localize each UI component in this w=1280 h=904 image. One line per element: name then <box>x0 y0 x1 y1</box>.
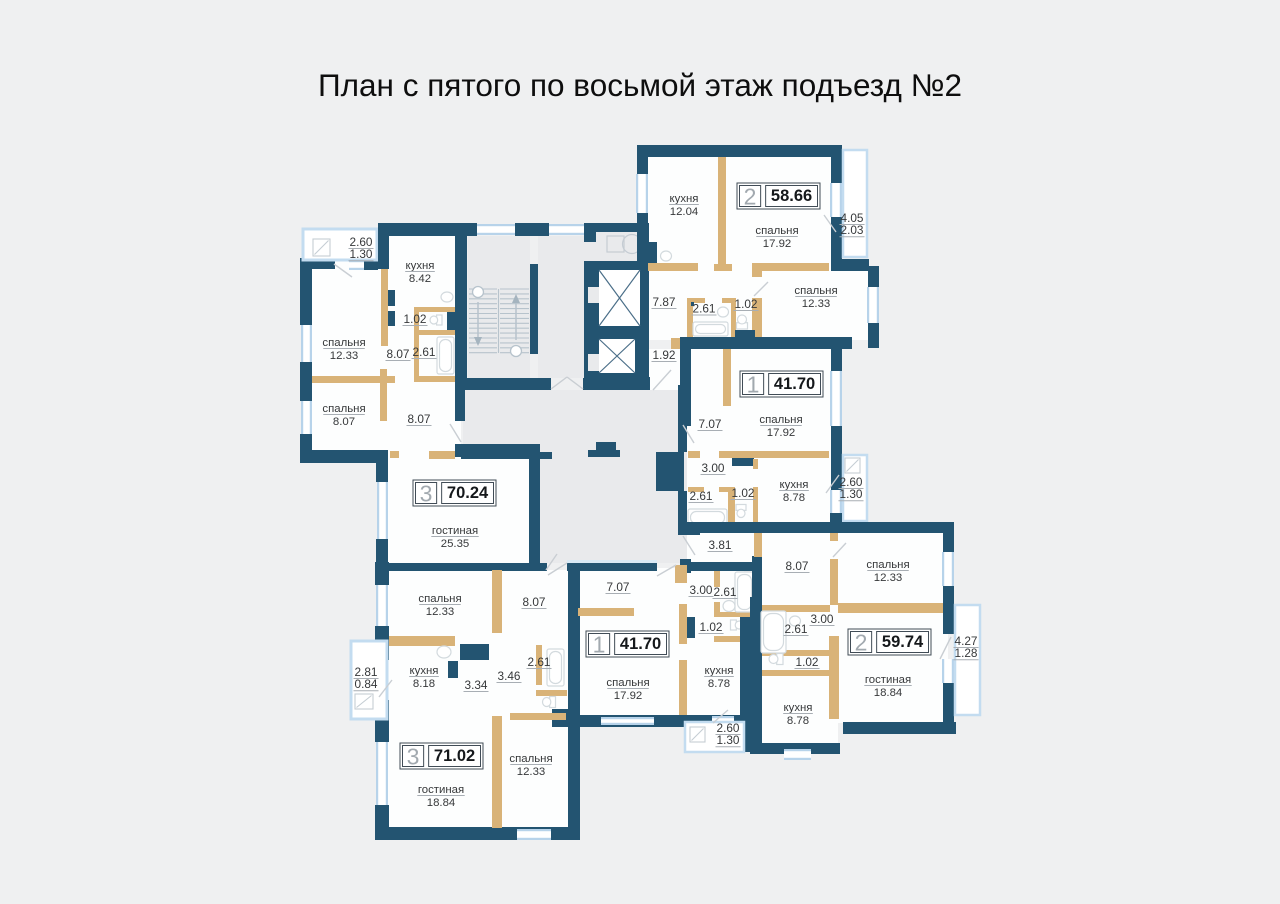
svg-text:41.70: 41.70 <box>620 635 661 653</box>
svg-text:2: 2 <box>744 184 757 210</box>
svg-text:спальня: спальня <box>794 285 837 297</box>
svg-text:3.81: 3.81 <box>709 538 732 552</box>
svg-text:спальня: спальня <box>755 225 798 237</box>
svg-text:12.33: 12.33 <box>802 298 831 310</box>
svg-text:1.30: 1.30 <box>350 247 373 261</box>
svg-text:25.35: 25.35 <box>441 538 470 550</box>
svg-text:7.07: 7.07 <box>699 417 722 431</box>
svg-text:2.61: 2.61 <box>413 345 436 359</box>
svg-text:41.70: 41.70 <box>774 375 815 393</box>
svg-text:12.33: 12.33 <box>330 350 359 362</box>
svg-text:8.78: 8.78 <box>783 492 805 504</box>
svg-text:1.30: 1.30 <box>717 733 740 747</box>
svg-text:71.02: 71.02 <box>434 747 475 765</box>
svg-text:17.92: 17.92 <box>767 427 796 439</box>
svg-text:1.02: 1.02 <box>735 297 758 311</box>
svg-text:12.33: 12.33 <box>517 766 546 778</box>
svg-text:1.28: 1.28 <box>955 646 978 660</box>
svg-text:7.87: 7.87 <box>653 295 676 309</box>
svg-text:8.07: 8.07 <box>523 595 546 609</box>
svg-text:1.02: 1.02 <box>796 655 819 669</box>
svg-text:1.30: 1.30 <box>840 487 863 501</box>
svg-text:План с пятого по восьмой этаж: План с пятого по восьмой этаж подъезд №2 <box>318 67 962 103</box>
svg-text:кухня: кухня <box>670 193 699 205</box>
svg-text:2.61: 2.61 <box>714 585 737 599</box>
svg-text:гостиная: гостиная <box>865 674 911 686</box>
svg-text:58.66: 58.66 <box>771 187 812 205</box>
svg-text:8.18: 8.18 <box>413 678 435 690</box>
svg-text:спальня: спальня <box>606 677 649 689</box>
svg-text:8.07: 8.07 <box>387 347 410 361</box>
svg-text:2.61: 2.61 <box>693 302 716 316</box>
svg-text:3.00: 3.00 <box>690 583 713 597</box>
svg-text:8.07: 8.07 <box>408 412 431 426</box>
svg-text:кухня: кухня <box>705 665 734 677</box>
svg-text:17.92: 17.92 <box>614 690 643 702</box>
svg-text:кухня: кухня <box>780 479 809 491</box>
svg-text:3.34: 3.34 <box>465 678 488 692</box>
svg-text:2: 2 <box>855 630 868 656</box>
svg-text:3.46: 3.46 <box>498 669 521 683</box>
svg-text:59.74: 59.74 <box>882 633 924 651</box>
svg-text:3.00: 3.00 <box>811 612 834 626</box>
svg-text:7.07: 7.07 <box>607 580 630 594</box>
svg-text:2.61: 2.61 <box>528 655 551 669</box>
svg-text:18.84: 18.84 <box>427 797 456 809</box>
svg-text:3.00: 3.00 <box>702 461 725 475</box>
svg-text:12.04: 12.04 <box>670 206 699 218</box>
svg-text:2.61: 2.61 <box>785 622 808 636</box>
svg-text:17.92: 17.92 <box>763 238 792 250</box>
svg-text:8.07: 8.07 <box>333 416 355 428</box>
svg-text:1: 1 <box>593 632 606 658</box>
svg-text:12.33: 12.33 <box>426 606 455 618</box>
svg-text:1.02: 1.02 <box>732 486 755 500</box>
svg-text:2.03: 2.03 <box>841 223 864 237</box>
svg-text:спальня: спальня <box>322 403 365 415</box>
svg-text:8.78: 8.78 <box>787 715 809 727</box>
svg-text:спальня: спальня <box>418 593 461 605</box>
svg-text:кухня: кухня <box>406 260 435 272</box>
svg-text:спальня: спальня <box>866 559 909 571</box>
svg-text:гостиная: гостиная <box>418 784 464 796</box>
svg-text:12.33: 12.33 <box>874 572 903 584</box>
svg-text:3: 3 <box>420 481 433 507</box>
svg-text:0.84: 0.84 <box>355 677 378 691</box>
svg-text:1.02: 1.02 <box>404 312 427 326</box>
svg-text:3: 3 <box>407 744 420 770</box>
svg-text:спальня: спальня <box>322 337 365 349</box>
svg-text:18.84: 18.84 <box>874 687 903 699</box>
svg-text:2.61: 2.61 <box>690 489 713 503</box>
svg-text:кухня: кухня <box>410 665 439 677</box>
svg-text:кухня: кухня <box>784 702 813 714</box>
svg-text:спальня: спальня <box>759 414 802 426</box>
svg-text:1.92: 1.92 <box>653 348 676 362</box>
svg-text:спальня: спальня <box>509 753 552 765</box>
svg-text:8.78: 8.78 <box>708 678 730 690</box>
svg-text:гостиная: гостиная <box>432 525 478 537</box>
svg-text:70.24: 70.24 <box>447 484 489 502</box>
svg-text:1.02: 1.02 <box>700 620 723 634</box>
svg-text:8.42: 8.42 <box>409 273 431 285</box>
svg-text:8.07: 8.07 <box>786 559 809 573</box>
svg-text:1: 1 <box>747 372 760 398</box>
